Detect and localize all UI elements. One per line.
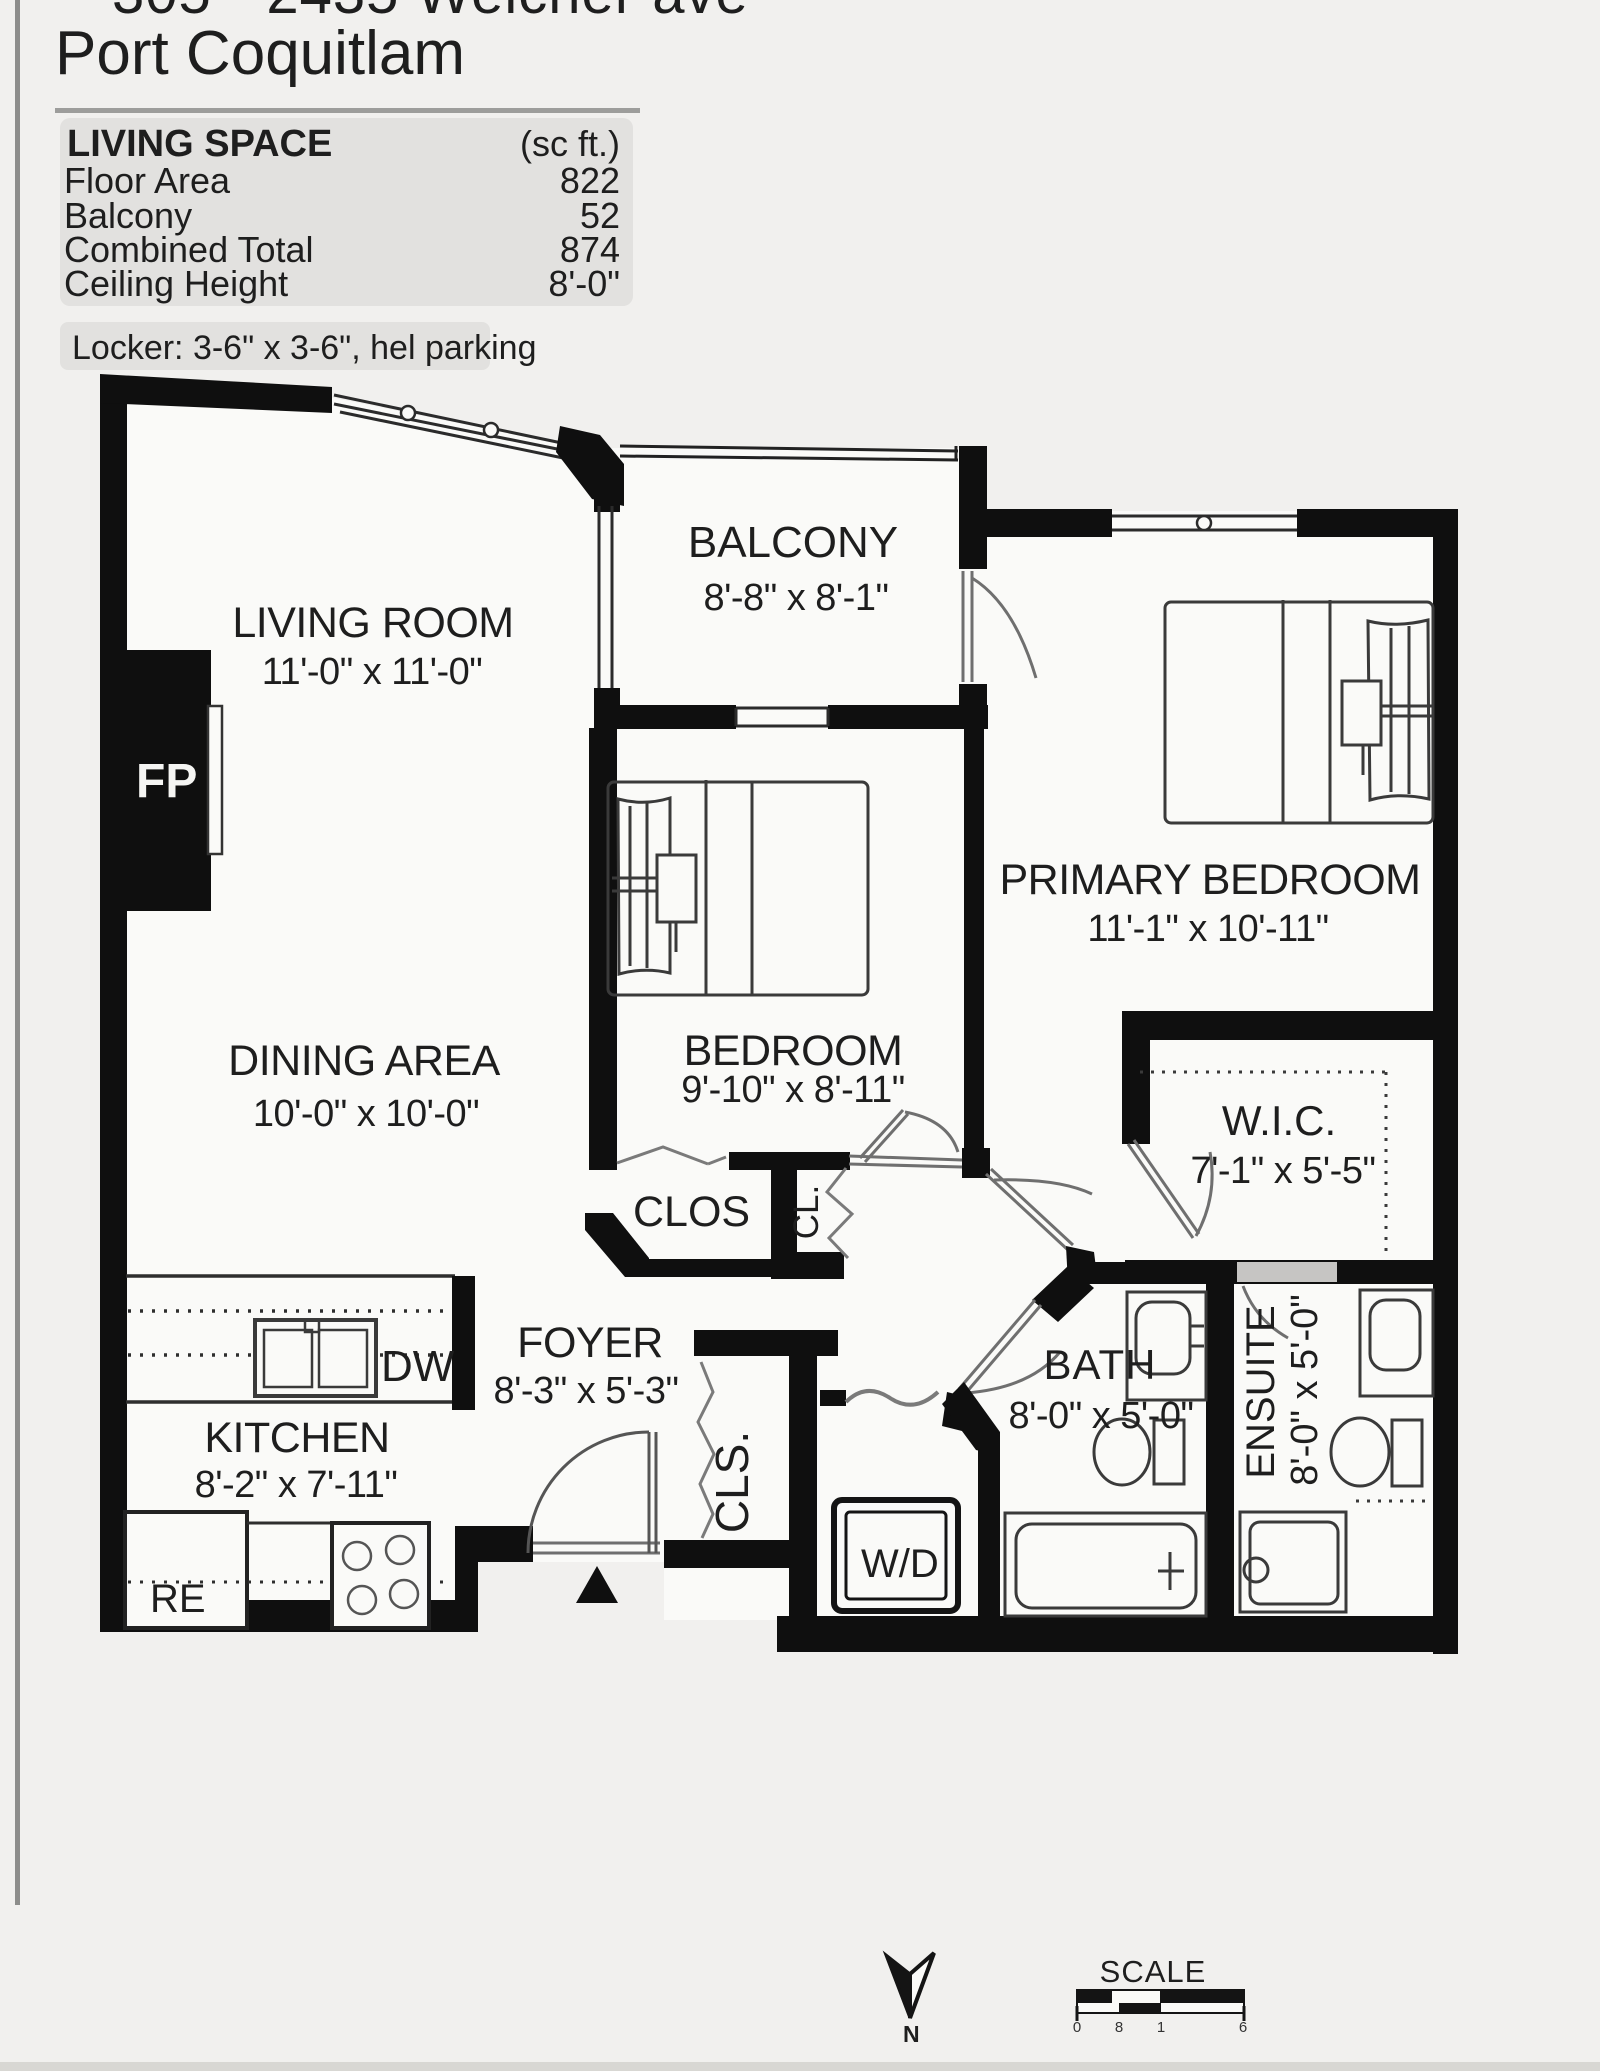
svg-text:8: 8 xyxy=(1115,2019,1123,2036)
svg-text:PRIMARY BEDROOM: PRIMARY BEDROOM xyxy=(1000,856,1421,904)
svg-text:ENSUITE: ENSUITE xyxy=(1239,1305,1283,1478)
svg-text:6: 6 xyxy=(1239,2019,1247,2036)
svg-text:8'-3" x 5'-3": 8'-3" x 5'-3" xyxy=(494,1370,679,1412)
svg-text:0: 0 xyxy=(1073,2019,1081,2036)
svg-text:Ceiling Height: Ceiling Height xyxy=(64,263,288,304)
svg-text:1: 1 xyxy=(1157,2019,1165,2036)
svg-text:10'-0" x 10'-0": 10'-0" x 10'-0" xyxy=(253,1093,479,1135)
svg-text:9'-10" x 8'-11": 9'-10" x 8'-11" xyxy=(681,1069,904,1111)
svg-text:BALCONY: BALCONY xyxy=(688,518,898,567)
svg-text:FOYER: FOYER xyxy=(517,1319,663,1367)
svg-text:W/D: W/D xyxy=(861,1542,939,1586)
svg-text:CL.: CL. xyxy=(787,1185,826,1239)
svg-text:8'-0": 8'-0" xyxy=(548,263,620,304)
svg-text:7'-1" x 5'-5": 7'-1" x 5'-5" xyxy=(1191,1150,1376,1192)
svg-text:Port Coquitlam: Port Coquitlam xyxy=(55,19,465,88)
svg-text:CLOS: CLOS xyxy=(633,1188,750,1236)
svg-text:8'-2" x 7'-11": 8'-2" x 7'-11" xyxy=(195,1464,398,1506)
svg-text:LIVING ROOM: LIVING ROOM xyxy=(232,599,513,647)
svg-text:FP: FP xyxy=(136,755,197,808)
svg-text:(sc ft.): (sc ft.) xyxy=(520,123,620,164)
svg-text:W.I.C.: W.I.C. xyxy=(1222,1097,1336,1144)
svg-text:DINING AREA: DINING AREA xyxy=(228,1037,500,1085)
svg-text:KITCHEN: KITCHEN xyxy=(204,1414,389,1462)
svg-text:SCALE: SCALE xyxy=(1100,1954,1207,1989)
svg-text:CLS.: CLS. xyxy=(706,1431,758,1533)
svg-text:Locker: 3-6" x 3-6", hel park: Locker: 3-6" x 3-6", hel parking xyxy=(72,329,536,367)
svg-text:DW: DW xyxy=(381,1342,455,1391)
svg-text:8'-8" x 8'-1": 8'-8" x 8'-1" xyxy=(704,577,889,619)
svg-text:N: N xyxy=(903,2021,920,2047)
svg-text:BATH: BATH xyxy=(1044,1341,1157,1388)
svg-text:8'-0" x 5'-0": 8'-0" x 5'-0" xyxy=(1284,1294,1326,1485)
svg-text:11'-0" x 11'-0": 11'-0" x 11'-0" xyxy=(262,651,483,693)
svg-text:RE: RE xyxy=(150,1577,206,1621)
svg-text:LIVING SPACE: LIVING SPACE xyxy=(67,123,332,165)
svg-text:11'-1" x 10'-11": 11'-1" x 10'-11" xyxy=(1087,908,1328,950)
svg-text:BEDROOM: BEDROOM xyxy=(684,1027,903,1075)
svg-text:8'-0" x 5'-0": 8'-0" x 5'-0" xyxy=(1009,1395,1194,1437)
